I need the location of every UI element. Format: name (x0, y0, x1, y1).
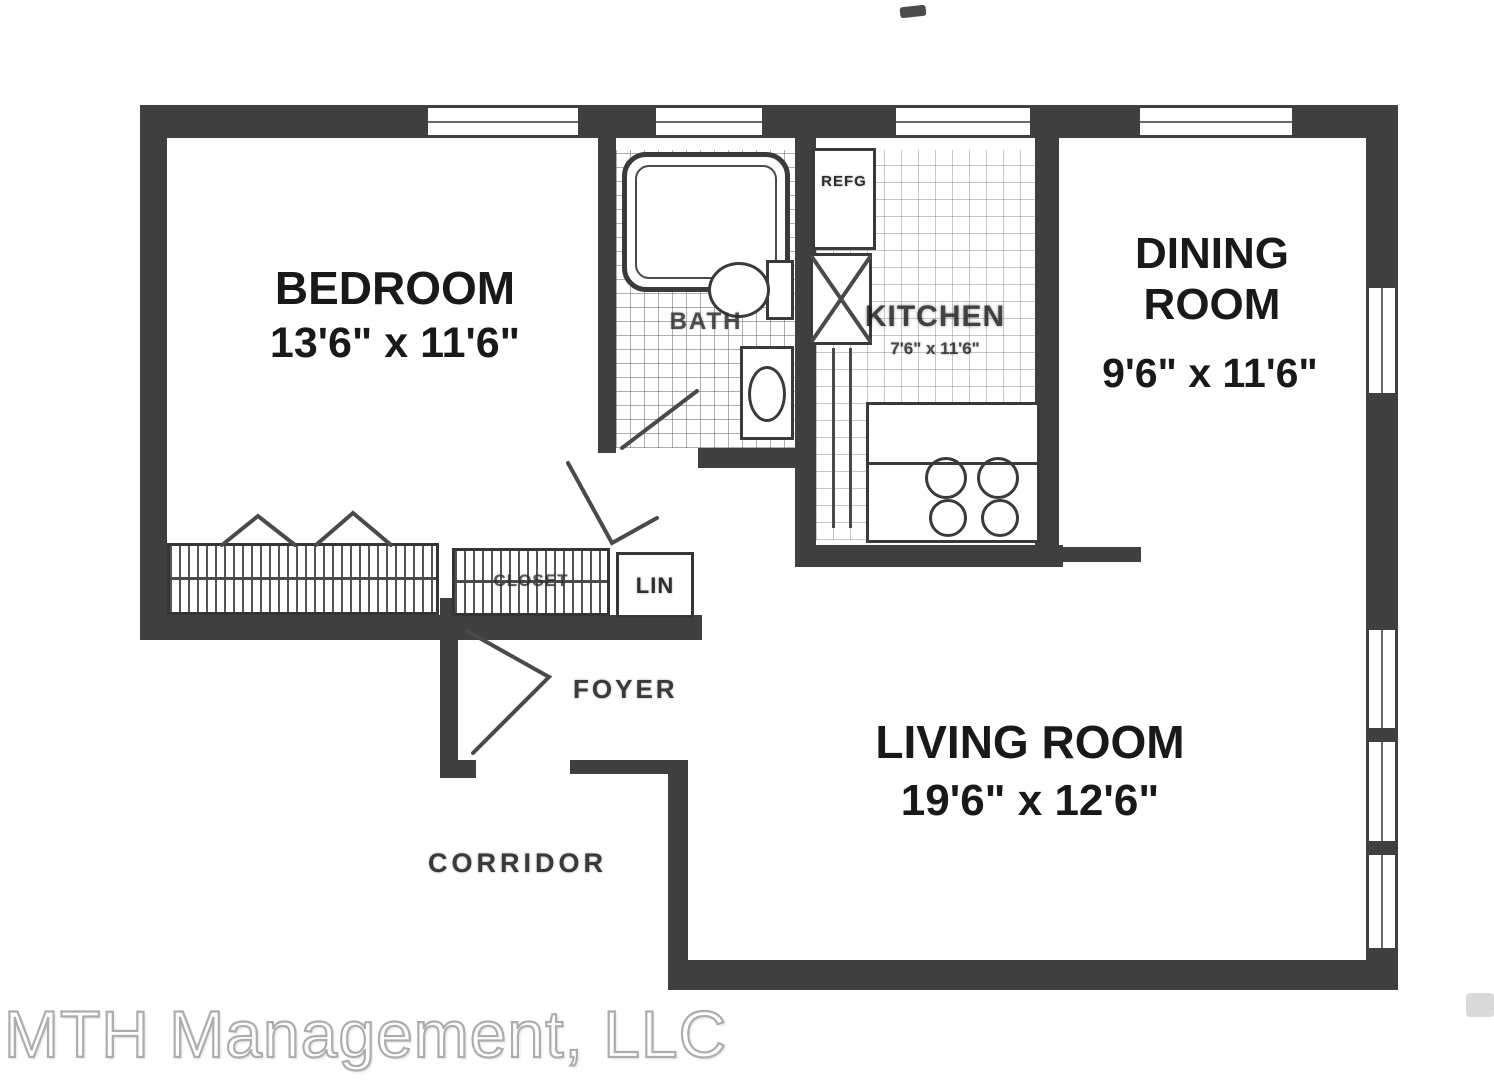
living-room-label: LIVING ROOM (800, 716, 1260, 769)
refrigerator-label: REFG (815, 173, 873, 190)
window-top-1 (428, 105, 578, 138)
bedroom-door-swing (568, 463, 657, 543)
closet-bifold-door-2 (316, 513, 391, 545)
coat-closet-label: CLOSET (455, 571, 607, 591)
watermark-text: MTH Management, LLC (4, 996, 727, 1072)
wall-kitchen-bottom (795, 545, 1063, 567)
bedroom-dimensions: 13'6" x 11'6" (180, 319, 610, 369)
bedroom-label-block: BEDROOM 13'6" x 11'6" (180, 262, 610, 369)
entry-door-swing (467, 631, 549, 753)
dining-room-label: DINING ROOM (1082, 228, 1342, 330)
floor-plan: BATH REFG KITCHEN 7'6" x 11'6" CLOSET LI… (0, 0, 1494, 1080)
wall-left (140, 105, 167, 637)
bathtub (622, 152, 790, 292)
wall-living-left (668, 772, 688, 968)
wall-living-left-cap (570, 760, 688, 774)
closet-rod (170, 577, 436, 580)
wall-foyer-left-cap (440, 760, 476, 778)
closet-bifold-door-1 (222, 516, 295, 545)
stove-burner-4 (981, 499, 1019, 537)
bathroom-sink-basin (748, 366, 786, 422)
coat-closet: CLOSET (452, 548, 610, 616)
stove-burner-1 (925, 457, 967, 499)
kitchen-label-block: KITCHEN 7'6" x 11'6" (835, 300, 1035, 359)
window-right-living-3 (1366, 855, 1398, 948)
wall-bottom (668, 960, 1398, 990)
wall-bath-bottom (698, 448, 798, 468)
scan-artifact-right (1466, 993, 1494, 1017)
dining-room-dimensions: 9'6" x 11'6" (1040, 350, 1380, 398)
linen-closet: LIN (616, 552, 694, 618)
scan-artifact-top (899, 5, 926, 19)
kitchen-counter-line (869, 405, 1037, 465)
window-top-2 (656, 105, 762, 138)
bedroom-closet (167, 543, 439, 615)
wall-kitchen-bottom-extension (1063, 547, 1141, 562)
foyer-label: FOYER (573, 674, 678, 705)
wall-foyer-left (440, 598, 458, 766)
bedroom-label: BEDROOM (180, 262, 610, 315)
window-right-living-2 (1366, 742, 1398, 841)
wall-bedroom-bottom (140, 615, 702, 640)
bathroom-label: BATH (616, 308, 796, 336)
kitchen-dimensions: 7'6" x 11'6" (835, 339, 1035, 359)
corridor-label: CORRIDOR (428, 848, 607, 879)
window-top-4 (1140, 105, 1292, 138)
stove-burner-2 (977, 457, 1019, 499)
stove-burner-3 (929, 499, 967, 537)
kitchen-cabinet-edge (832, 348, 852, 528)
kitchen-counter-stove (866, 402, 1040, 543)
kitchen-label: KITCHEN (835, 300, 1035, 335)
window-right-living-1 (1366, 630, 1398, 728)
living-room-label-block: LIVING ROOM 19'6" x 12'6" (800, 716, 1260, 826)
linen-closet-label: LIN (619, 573, 691, 599)
living-room-dimensions: 19'6" x 12'6" (800, 775, 1260, 826)
window-top-3 (896, 105, 1030, 138)
bathtub-inner-line (635, 165, 777, 279)
refrigerator: REFG (812, 148, 876, 250)
